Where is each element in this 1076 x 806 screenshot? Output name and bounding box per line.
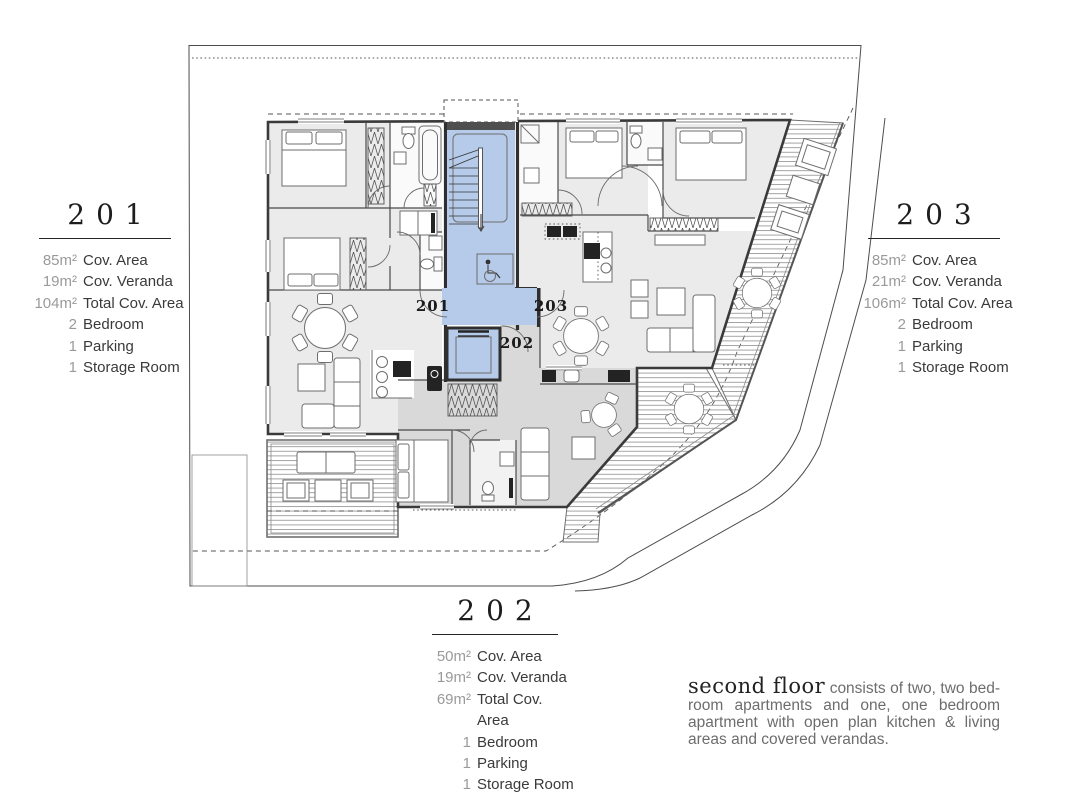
title-underline bbox=[432, 634, 558, 635]
plan-label-201: 201 bbox=[416, 297, 450, 315]
cooktop bbox=[584, 243, 600, 259]
info-row: 104m²Total Cov. Area bbox=[20, 293, 190, 314]
info-row: 21m²Cov. Veranda bbox=[849, 271, 1019, 292]
floor-description: second floor consists of two, two bed- r… bbox=[688, 678, 1000, 749]
wardrobe bbox=[368, 128, 384, 204]
sofa bbox=[302, 404, 334, 428]
info-row: 1Parking bbox=[20, 336, 190, 357]
outdoor-table bbox=[315, 480, 341, 501]
info-row: 69m²Total Cov. Area bbox=[414, 689, 576, 732]
info-row: 1Parking bbox=[849, 336, 1019, 357]
sofa bbox=[334, 358, 360, 428]
toilet bbox=[402, 127, 415, 134]
apt-202-info: 202 50m²Cov. Area 19m²Cov. Veranda 69m²T… bbox=[414, 594, 576, 796]
basin bbox=[500, 452, 514, 466]
apt-203-title: 203 bbox=[849, 198, 1019, 231]
cooktop bbox=[393, 361, 411, 377]
info-row: 1Storage Room bbox=[849, 357, 1019, 378]
roof-hatch-outline bbox=[444, 100, 518, 122]
coffee-table bbox=[572, 437, 595, 459]
wardrobe bbox=[448, 384, 497, 416]
wardrobe bbox=[650, 218, 718, 231]
description-lead: second floor bbox=[688, 674, 825, 698]
info-row: 2Bedroom bbox=[849, 314, 1019, 335]
toilet bbox=[434, 257, 442, 271]
apt-201-title: 201 bbox=[20, 198, 190, 231]
toilet bbox=[630, 126, 642, 133]
appliance bbox=[547, 226, 561, 237]
basin bbox=[394, 152, 406, 164]
elevator bbox=[447, 328, 500, 380]
title-underline bbox=[868, 238, 1000, 239]
description-line: room apartments and one, one bedroom bbox=[688, 698, 1000, 715]
description-line: apartment with open plan kitchen & livin… bbox=[688, 715, 1000, 732]
info-row: 106m²Total Cov. Area bbox=[849, 293, 1019, 314]
brochure-page: 201 203 202 201 85m²Cov. Area 19m²Cov. V… bbox=[0, 0, 1076, 806]
title-underline bbox=[39, 238, 171, 239]
apt-201-info: 201 85m²Cov. Area 19m²Cov. Veranda 104m²… bbox=[20, 198, 190, 378]
stair-landing bbox=[447, 232, 515, 288]
info-row: 1Storage Room bbox=[20, 357, 190, 378]
basin bbox=[429, 236, 442, 250]
hall-closet bbox=[400, 211, 418, 235]
wardrobe bbox=[522, 203, 572, 216]
tv-console bbox=[655, 235, 705, 245]
common-hall bbox=[442, 288, 537, 325]
sink bbox=[564, 370, 579, 382]
apt-202-title: 202 bbox=[414, 594, 576, 627]
stair-glass-wall bbox=[447, 122, 515, 130]
info-row: 1Parking bbox=[414, 753, 576, 774]
basin bbox=[648, 148, 662, 160]
plan-label-202: 202 bbox=[500, 334, 534, 352]
apt-203-info: 203 85m²Cov. Area 21m²Cov. Veranda 106m²… bbox=[849, 198, 1019, 378]
info-row: 2Bedroom bbox=[20, 314, 190, 335]
closet bbox=[424, 184, 436, 206]
info-row: 1Bedroom bbox=[414, 732, 576, 753]
armchair bbox=[298, 364, 325, 391]
appliance bbox=[563, 226, 577, 237]
appliance bbox=[542, 370, 556, 382]
wardrobe bbox=[350, 238, 366, 290]
plan-label-203: 203 bbox=[534, 297, 568, 315]
info-row: 1Storage Room bbox=[414, 774, 576, 795]
description-line: second floor consists of two, two bed- bbox=[688, 678, 1000, 698]
info-row: 85m²Cov. Area bbox=[20, 250, 190, 271]
info-row: 19m²Cov. Veranda bbox=[414, 667, 576, 688]
cooktop bbox=[608, 370, 630, 382]
planter-strip bbox=[192, 455, 247, 586]
info-row: 50m²Cov. Area bbox=[414, 646, 576, 667]
basin bbox=[524, 168, 539, 183]
info-row: 85m²Cov. Area bbox=[849, 250, 1019, 271]
sofa bbox=[693, 295, 715, 352]
toilet bbox=[482, 495, 494, 501]
washing-machine bbox=[427, 366, 442, 391]
coffee-table bbox=[657, 288, 685, 315]
description-line: areas and covered verandas. bbox=[688, 732, 1000, 749]
info-row: 19m²Cov. Veranda bbox=[20, 271, 190, 292]
sofa bbox=[521, 428, 549, 500]
